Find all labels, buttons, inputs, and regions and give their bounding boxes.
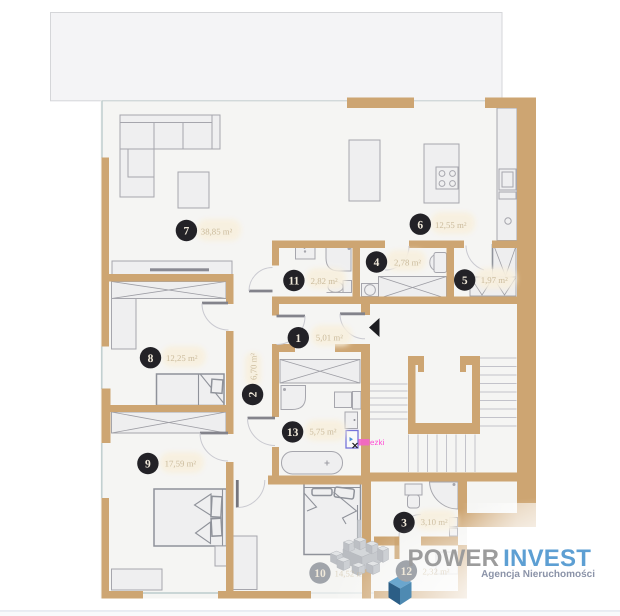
svg-text:ezki: ezki xyxy=(370,438,384,447)
svg-text:12,25 m²: 12,25 m² xyxy=(166,353,198,363)
svg-text:5,01 m²: 5,01 m² xyxy=(316,332,343,342)
svg-text:10: 10 xyxy=(314,568,326,580)
svg-text:9: 9 xyxy=(145,459,151,471)
svg-text:12,55 m²: 12,55 m² xyxy=(435,220,467,230)
svg-text:11: 11 xyxy=(288,276,299,288)
svg-text:5,75 m²: 5,75 m² xyxy=(309,426,336,436)
svg-text:8: 8 xyxy=(148,353,154,365)
svg-text:Agencja Nieruchomości: Agencja Nieruchomości xyxy=(481,569,595,580)
svg-text:2: 2 xyxy=(248,391,260,397)
svg-text:38,85 m²: 38,85 m² xyxy=(201,227,233,237)
svg-text:4: 4 xyxy=(374,257,380,269)
svg-text:7: 7 xyxy=(184,226,190,238)
svg-text:1,97 m²: 1,97 m² xyxy=(481,275,508,285)
svg-text:13: 13 xyxy=(287,427,299,439)
svg-text:6: 6 xyxy=(417,219,423,231)
svg-text:1: 1 xyxy=(295,333,301,345)
svg-text:6,70 m²: 6,70 m² xyxy=(249,353,259,380)
svg-text:5: 5 xyxy=(462,275,468,287)
svg-text:2,78 m²: 2,78 m² xyxy=(394,258,421,268)
svg-text:2,82 m²: 2,82 m² xyxy=(311,276,338,286)
svg-text:17,59 m²: 17,59 m² xyxy=(165,459,197,469)
svg-text:14,52 m²: 14,52 m² xyxy=(335,568,367,578)
